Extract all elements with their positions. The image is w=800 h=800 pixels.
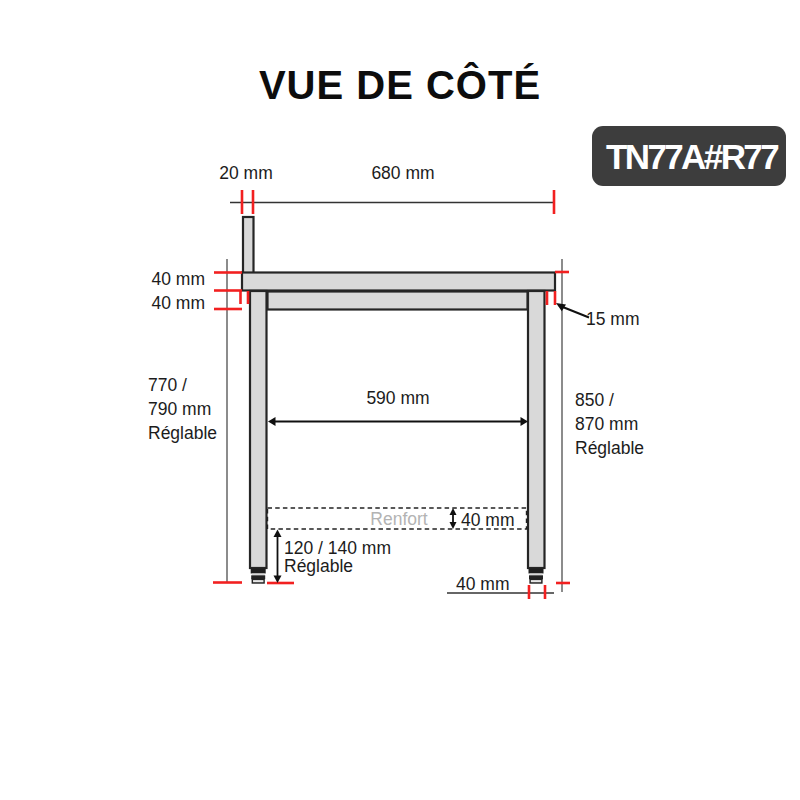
svg-text:850 /: 850 / <box>575 390 614 410</box>
svg-text:40 mm: 40 mm <box>456 574 509 594</box>
svg-text:40 mm: 40 mm <box>461 510 514 530</box>
svg-text:40 mm: 40 mm <box>152 293 205 313</box>
svg-text:15 mm: 15 mm <box>586 309 639 329</box>
svg-text:Réglable: Réglable <box>148 423 217 443</box>
svg-text:770 /: 770 / <box>148 375 187 395</box>
svg-text:Renfort: Renfort <box>370 509 428 529</box>
svg-text:Réglable: Réglable <box>284 556 353 576</box>
svg-text:20 mm: 20 mm <box>219 163 272 183</box>
svg-text:870 mm: 870 mm <box>575 414 638 434</box>
svg-text:Réglable: Réglable <box>575 438 644 458</box>
svg-text:790 mm: 790 mm <box>148 399 211 419</box>
svg-text:120 / 140 mm: 120 / 140 mm <box>284 538 391 558</box>
svg-text:40 mm: 40 mm <box>152 269 205 289</box>
svg-text:590 mm: 590 mm <box>366 388 429 408</box>
svg-text:680 mm: 680 mm <box>371 163 434 183</box>
